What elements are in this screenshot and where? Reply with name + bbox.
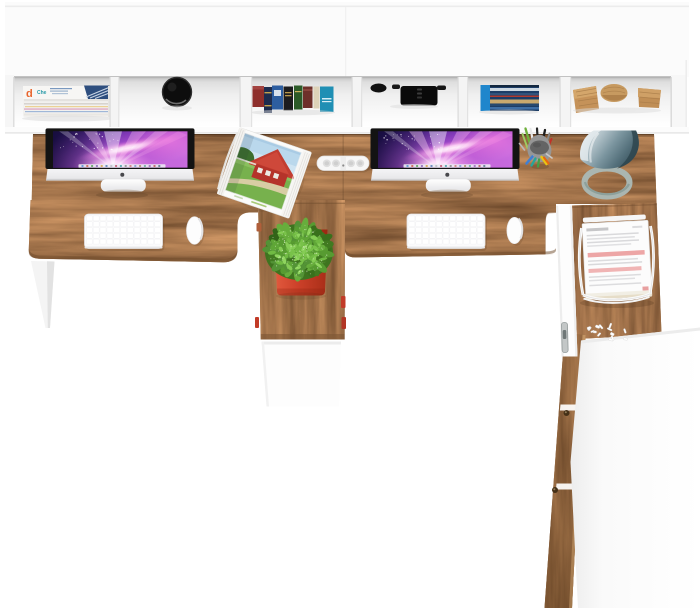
svg-text:d: d xyxy=(26,88,33,100)
svg-text:Che: Che xyxy=(37,90,47,96)
